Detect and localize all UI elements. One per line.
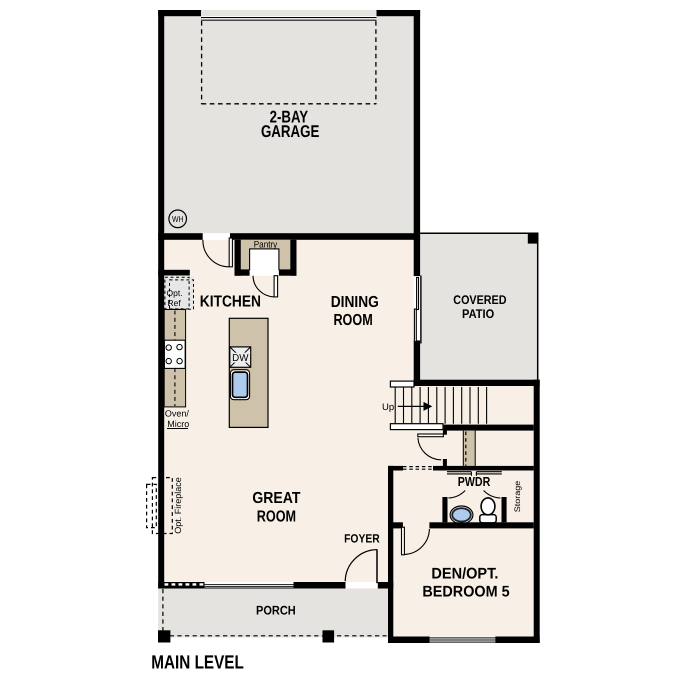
svg-text:MAIN LEVEL: MAIN LEVEL (151, 653, 244, 674)
svg-text:Oven/: Oven/ (165, 409, 190, 419)
svg-text:Pantry: Pantry (254, 240, 278, 251)
svg-text:COVERED: COVERED (453, 293, 506, 307)
svg-text:GARAGE: GARAGE (261, 122, 320, 141)
svg-text:DW: DW (232, 353, 249, 364)
svg-text:KITCHEN: KITCHEN (200, 293, 261, 310)
svg-text:Opt.: Opt. (167, 288, 183, 298)
svg-text:Micro: Micro (167, 419, 189, 429)
svg-text:ROOM: ROOM (333, 312, 372, 329)
svg-text:FOYER: FOYER (344, 531, 380, 545)
svg-text:Storage: Storage (513, 480, 522, 512)
svg-text:WH: WH (172, 214, 184, 224)
svg-text:PORCH: PORCH (256, 603, 296, 617)
svg-text:DEN/OPT.: DEN/OPT. (431, 566, 498, 583)
svg-text:DINING: DINING (331, 294, 379, 311)
svg-text:GREAT: GREAT (252, 490, 300, 507)
svg-text:PATIO: PATIO (462, 307, 494, 321)
svg-text:Up: Up (382, 402, 394, 413)
svg-text:Ref: Ref (168, 298, 182, 308)
svg-text:ROOM: ROOM (257, 508, 296, 525)
svg-text:PWDR: PWDR (458, 474, 491, 489)
svg-text:Opt. Fireplace: Opt. Fireplace (173, 477, 183, 534)
svg-text:BEDROOM 5: BEDROOM 5 (422, 584, 510, 601)
